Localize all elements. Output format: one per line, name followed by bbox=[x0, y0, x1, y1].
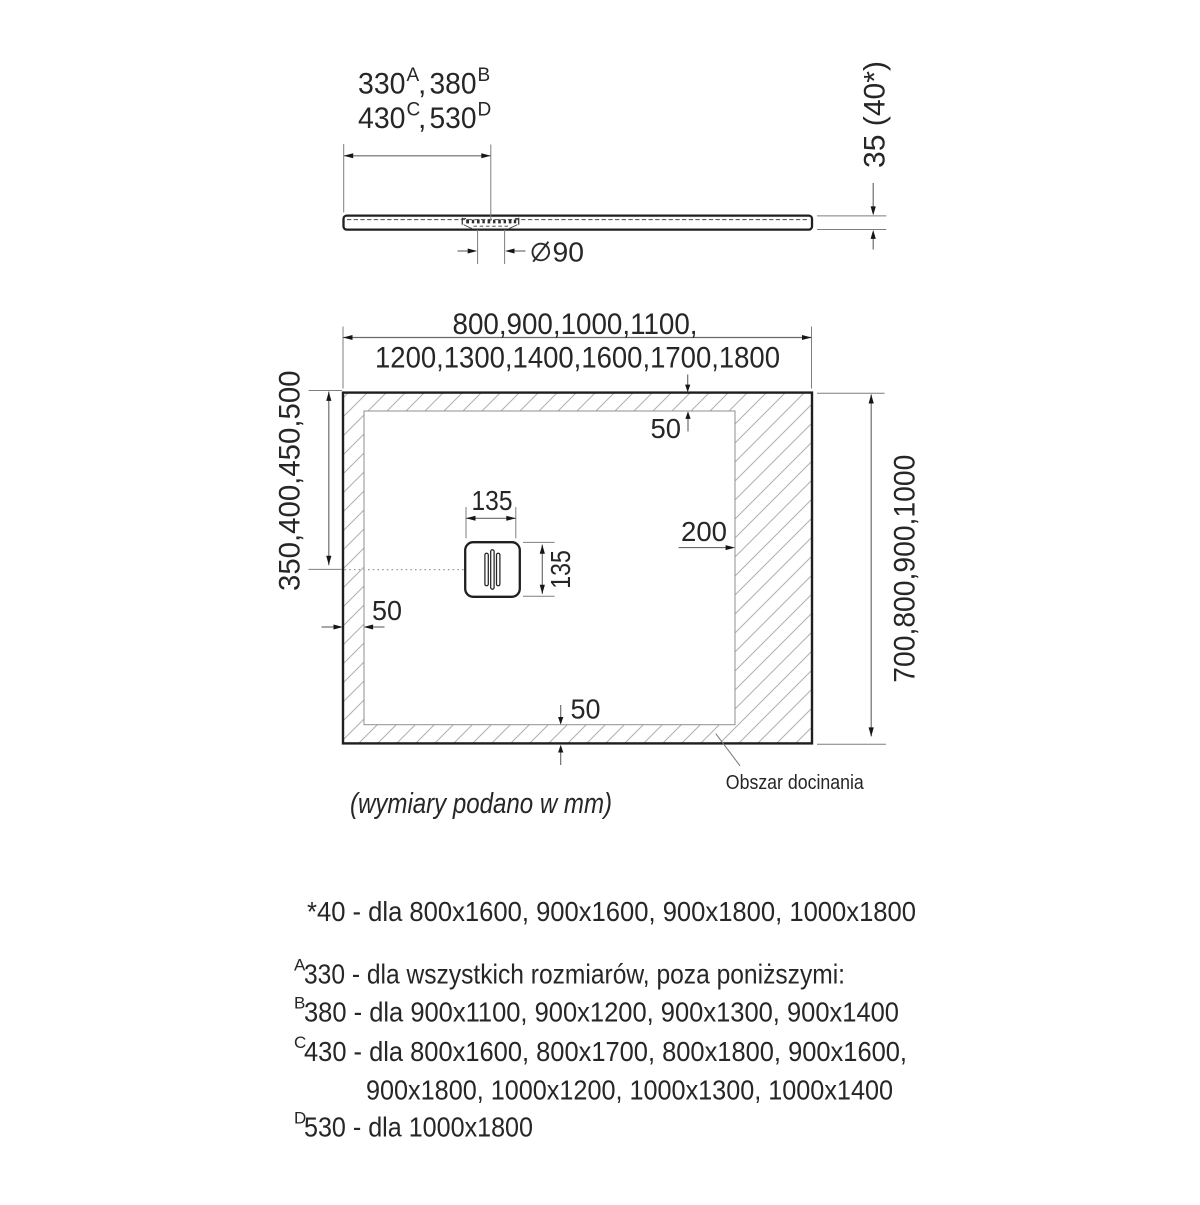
svg-text:35 (40*): 35 (40*) bbox=[858, 61, 891, 168]
svg-text:800,900,1000,1100,: 800,900,1000,1100, bbox=[453, 308, 698, 341]
svg-text:50: 50 bbox=[372, 595, 402, 626]
svg-text:380: 380 bbox=[430, 68, 477, 101]
svg-text:D: D bbox=[478, 100, 492, 121]
svg-text:*40 - dla 800x1600, 900x1600,: *40 - dla 800x1600, 900x1600, 900x1800, … bbox=[307, 896, 916, 927]
svg-text:430: 430 bbox=[358, 102, 406, 135]
svg-text:135: 135 bbox=[472, 485, 513, 516]
svg-text:,: , bbox=[418, 102, 426, 135]
svg-text:135: 135 bbox=[545, 550, 576, 589]
svg-text:90: 90 bbox=[553, 237, 585, 268]
svg-text:,: , bbox=[418, 68, 426, 101]
svg-text:50: 50 bbox=[651, 413, 682, 444]
svg-text:Obszar docinania: Obszar docinania bbox=[726, 771, 865, 794]
svg-text:530 - dla 1000x1800: 530 - dla 1000x1800 bbox=[304, 1112, 533, 1143]
svg-text:430 - dla 800x1600, 800x1700,: 430 - dla 800x1600, 800x1700, 800x1800, … bbox=[304, 1036, 907, 1067]
svg-text:200: 200 bbox=[681, 516, 727, 547]
svg-text:380 - dla 900x1100, 900x1200,: 380 - dla 900x1100, 900x1200, 900x1300, … bbox=[304, 997, 899, 1028]
svg-text:530: 530 bbox=[430, 102, 477, 135]
svg-text:900x1800, 1000x1200, 1000x1300: 900x1800, 1000x1200, 1000x1300, 1000x140… bbox=[366, 1075, 893, 1106]
svg-text:1200,1300,1400,1600,1700,1800: 1200,1300,1400,1600,1700,1800 bbox=[375, 342, 780, 375]
svg-text:330: 330 bbox=[358, 68, 406, 101]
svg-text:350,400,450,500: 350,400,450,500 bbox=[274, 371, 307, 592]
svg-text:B: B bbox=[478, 65, 491, 86]
svg-text:700,800,900,1000: 700,800,900,1000 bbox=[888, 455, 921, 683]
svg-text:330 - dla wszystkich rozmiarów: 330 - dla wszystkich rozmiarów, poza pon… bbox=[304, 959, 845, 990]
svg-text:(wymiary podano w mm): (wymiary podano w mm) bbox=[350, 788, 612, 820]
svg-text:50: 50 bbox=[571, 694, 601, 725]
